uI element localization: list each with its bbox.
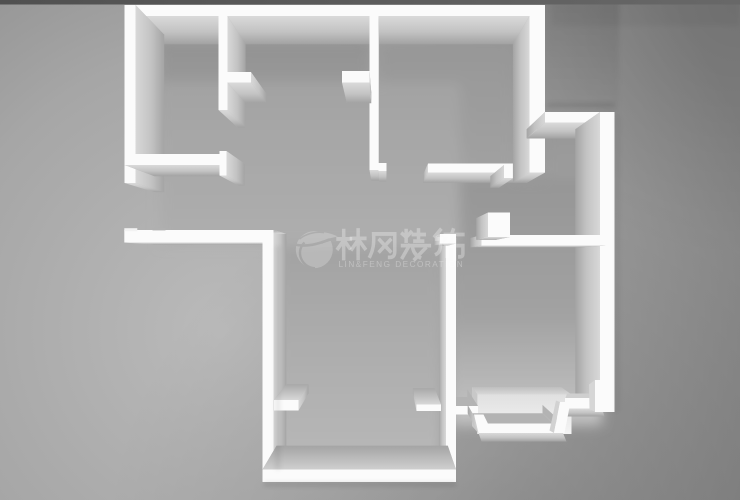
svg-text:LIN&FENG DECORATION: LIN&FENG DECORATION	[339, 260, 465, 269]
